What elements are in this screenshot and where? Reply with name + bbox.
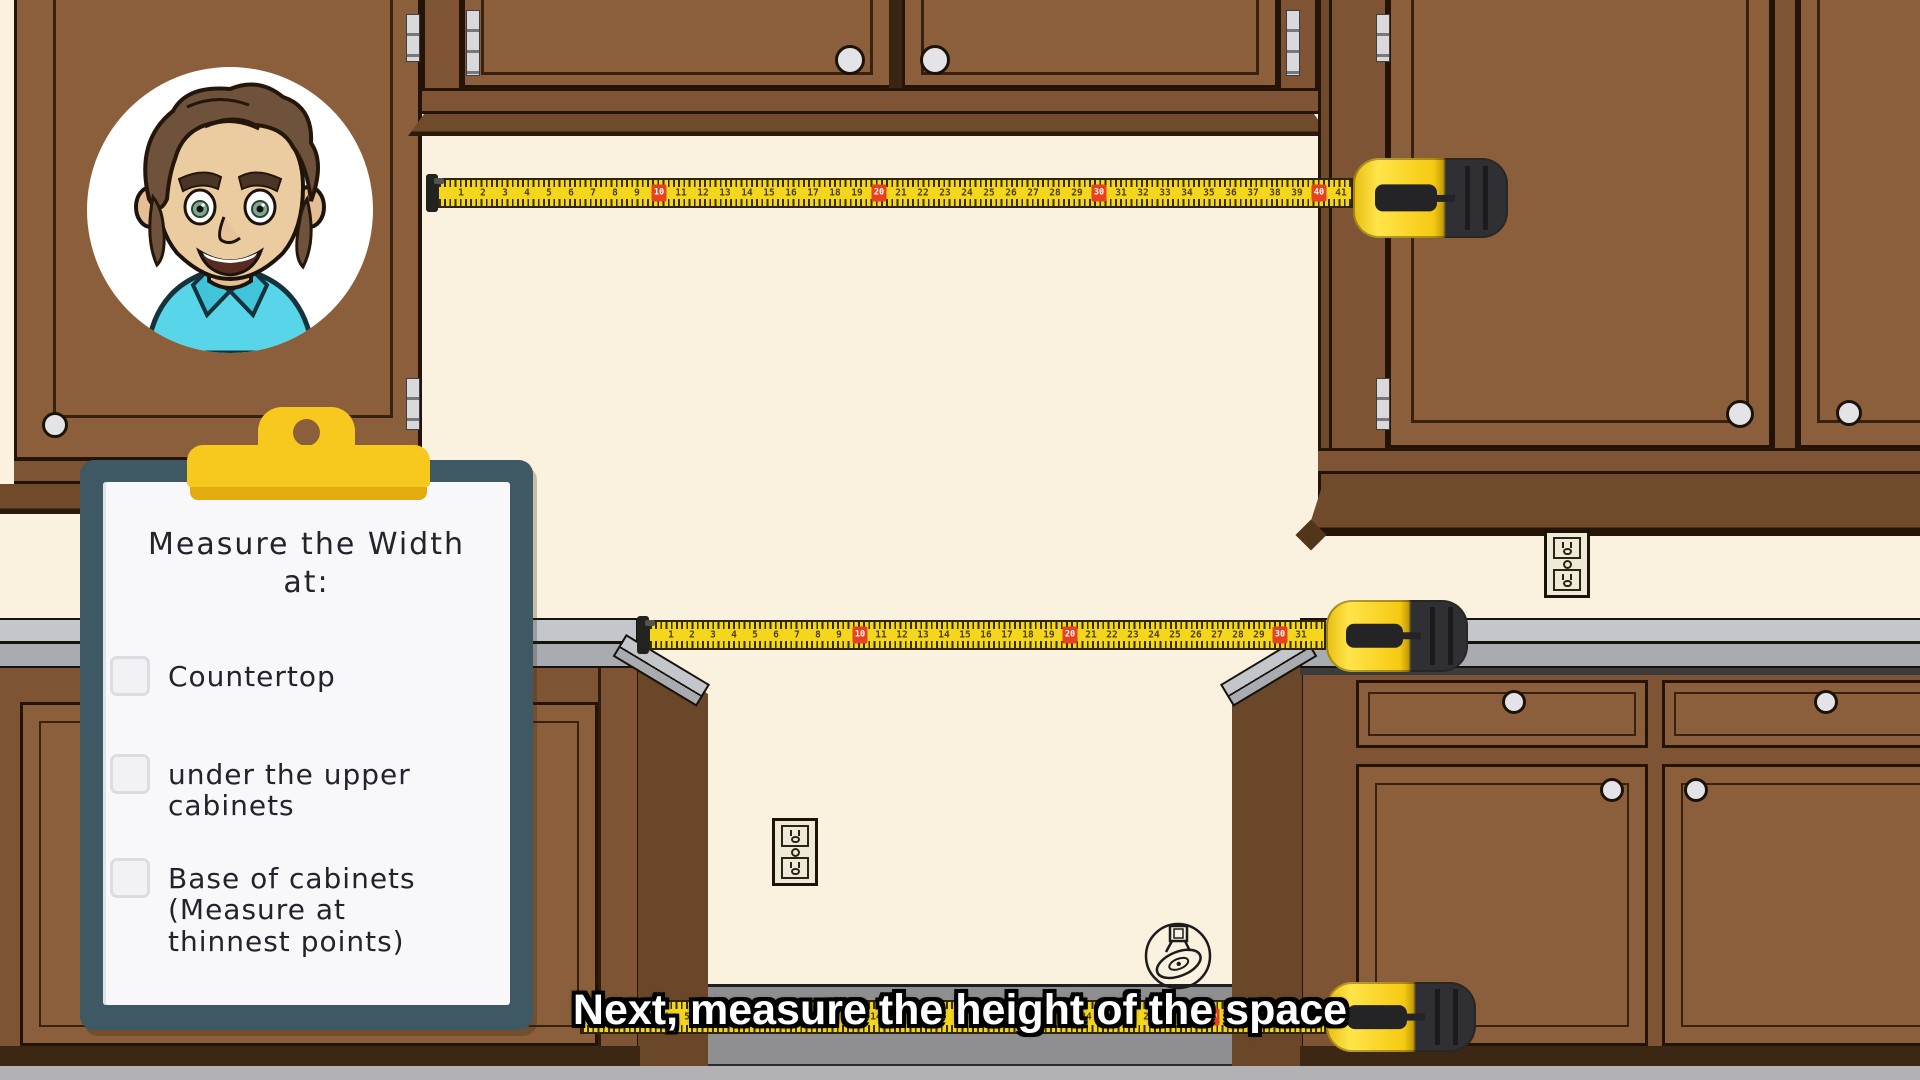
tape-number: 22 [917,188,928,199]
hinge [406,14,420,62]
outlet-socket [781,825,809,847]
tape-number: 9 [634,188,640,199]
tape-number: 26 [1190,630,1201,641]
checkbox [110,656,150,696]
tape-number: 41 [1335,188,1346,199]
tape-number: 12 [896,630,907,641]
floor [0,1064,1920,1080]
tape-number: 9 [836,630,842,641]
tape-body-ridges [1452,166,1495,230]
cabinet-divider [889,0,902,88]
upper-center-cabinet-door-right [902,0,1278,88]
tape-number: 25 [983,188,994,199]
hinge [466,10,480,76]
cabinet-bottom-trim [1306,474,1920,536]
measuring-tape-upper: 1234567891011121314151617181920212223242… [437,178,1353,208]
checklist-item-label: Countertop [168,656,420,696]
checklist-item-label: Base of cabinets (Measure at thinnest po… [168,858,420,957]
clipboard-clip-hole [293,419,320,446]
tape-number: 7 [794,630,800,641]
upper-right-cabinet-door-partial [1798,0,1920,448]
clipboard-clip-shadow [190,487,427,500]
tape-number: 5 [546,188,552,199]
tape-number: 13 [719,188,730,199]
tape-number: 19 [1043,630,1054,641]
checklist-item: under the upper cabinets [110,754,420,822]
tape-number: 15 [959,630,970,641]
outlet-socket [1553,569,1581,591]
tape-number-decade: 30 [1092,185,1107,202]
checkbox [110,858,150,898]
tape-number: 39 [1291,188,1302,199]
hinge [1376,378,1390,430]
tape-number-decade: 20 [872,185,887,202]
caption-subtitle: Next, measure the height of the space [0,986,1920,1035]
tape-number-decade: 20 [1063,627,1078,644]
tape-number: 23 [1127,630,1138,641]
clipboard: Measure the Width at: Countertop under t… [80,460,533,1030]
tape-number: 33 [1159,188,1170,199]
tape-number: 13 [917,630,928,641]
drawer-panel [1674,692,1920,736]
tape-number: 31 [1115,188,1126,199]
tape-number-decade: 10 [652,185,667,202]
tape-number: 17 [807,188,818,199]
tape-number: 22 [1106,630,1117,641]
tape-number: 14 [741,188,752,199]
cabinet-door-panel [481,0,873,75]
tape-number: 21 [1085,630,1096,641]
cabinet-knob [42,412,68,438]
tape-number: 11 [675,188,686,199]
tape-number: 23 [939,188,950,199]
tape-number: 15 [763,188,774,199]
tape-number: 6 [568,188,574,199]
tape-number: 17 [1001,630,1012,641]
tape-number: 19 [851,188,862,199]
power-outlet [772,818,818,886]
tape-number: 38 [1269,188,1280,199]
tape-number: 32 [1137,188,1148,199]
measuring-tape-counter: 1234567891011121314151617181920212223242… [648,620,1326,650]
outlet-screw [791,848,800,857]
kitchen-scene: 1234567891011121314151617181920212223242… [0,0,1920,1080]
cabinet-bottom-trim [408,114,1330,136]
power-outlet [1544,530,1590,598]
tape-number: 35 [1203,188,1214,199]
cabinet-knob [835,45,865,75]
tape-number: 12 [697,188,708,199]
outlet-socket [1553,537,1581,559]
tape-number: 27 [1027,188,1038,199]
cabinet-knob [1726,400,1754,428]
tape-number: 4 [524,188,530,199]
cabinet-bottom-rail [1318,448,1920,474]
drawer [1662,680,1920,748]
tape-ticks [650,641,1324,648]
tape-hook [637,616,649,654]
checklist-item-label: under the upper cabinets [168,754,420,822]
tape-number: 7 [590,188,596,199]
tape-lock [1346,624,1403,648]
cabinet-door-panel [921,0,1259,75]
tape-number: 4 [731,630,737,641]
tape-number: 1 [668,630,674,641]
tape-number: 18 [1022,630,1033,641]
tape-number: 16 [980,630,991,641]
cabinet-knob [1600,778,1624,802]
tape-body-ridges [1417,607,1457,665]
tape-number: 3 [710,630,716,641]
tape-number: 5 [752,630,758,641]
cabinet-bottom-rail [422,88,1318,114]
checklist-item: Countertop [110,656,420,696]
tape-hook [426,174,438,212]
tape-number: 11 [875,630,886,641]
tape-number: 14 [938,630,949,641]
upper-center-cabinet-door-left [462,0,892,88]
tape-number: 24 [1148,630,1159,641]
hinge [1286,10,1300,76]
tape-number: 21 [895,188,906,199]
tape-number: 27 [1211,630,1222,641]
hinge [1376,14,1390,62]
tape-number: 28 [1049,188,1060,199]
tape-number: 34 [1181,188,1192,199]
checklist-title: Measure the Width at: [103,526,510,601]
checklist-title-line1: Measure the Width [103,526,510,564]
tape-number: 29 [1071,188,1082,199]
tape-number: 1 [458,188,464,199]
cabinet-door-panel [1817,0,1920,423]
tape-number: 37 [1247,188,1258,199]
cabinet-knob [1684,778,1708,802]
tape-number: 25 [1169,630,1180,641]
tape-ticks [439,180,1351,187]
tape-number: 36 [1225,188,1236,199]
hinge [406,378,420,430]
checklist-item: Base of cabinets (Measure at thinnest po… [110,858,420,957]
tape-number: 28 [1232,630,1243,641]
tape-ticks [650,622,1324,629]
cabinet-knob [1836,400,1862,426]
tape-number: 16 [785,188,796,199]
tape-lock [1375,184,1437,211]
tape-number: 8 [612,188,618,199]
checkbox [110,754,150,794]
tape-number-decade: 40 [1312,185,1327,202]
toe-kick [0,1046,640,1066]
tape-number: 3 [502,188,508,199]
cabinet-knob [920,45,950,75]
tape-ticks [439,199,1351,206]
outlet-screw [1563,560,1572,569]
tape-number: 26 [1005,188,1016,199]
cabinet-divider [1772,0,1798,448]
clipboard-clip [187,445,430,487]
cartoon-man-illustration [87,67,373,353]
checklist-title-line2: at: [103,564,510,602]
tape-number-decade: 30 [1273,627,1288,644]
tape-number: 2 [480,188,486,199]
tape-number: 18 [829,188,840,199]
tape-number: 24 [961,188,972,199]
presenter-avatar [87,67,373,353]
tape-number: 31 [1295,630,1306,641]
tape-measure-body [1353,158,1508,238]
tape-measure-body [1326,600,1468,672]
tape-number: 29 [1253,630,1264,641]
drawer [1356,680,1648,748]
tape-number: 6 [773,630,779,641]
tape-measure-icon [1138,918,1218,992]
tape-number-decade: 10 [853,627,868,644]
tape-number: 2 [689,630,695,641]
outlet-socket [781,857,809,879]
tape-number: 8 [815,630,821,641]
drawer-knob [1814,690,1838,714]
drawer-knob [1502,690,1526,714]
